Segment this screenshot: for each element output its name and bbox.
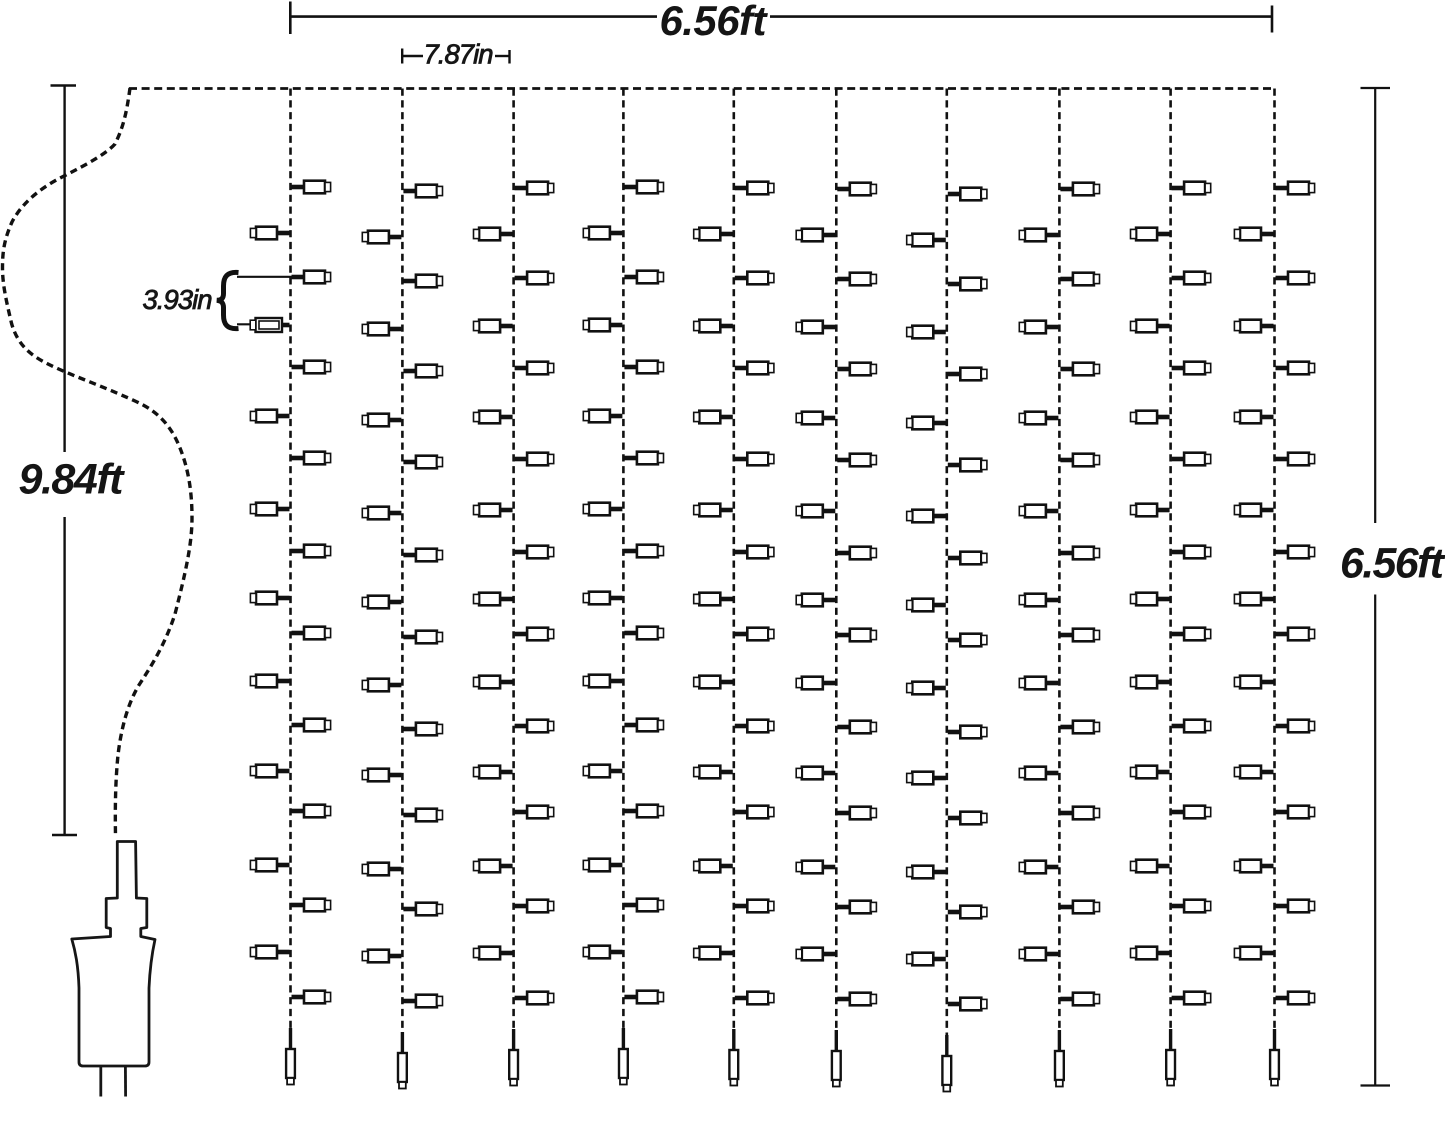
svg-text:9.84ft: 9.84ft <box>19 456 126 504</box>
svg-text:3.93in: 3.93in <box>143 284 213 315</box>
svg-text:6.56ft: 6.56ft <box>660 0 769 44</box>
svg-text:7.87in: 7.87in <box>424 39 494 70</box>
svg-text:6.56ft: 6.56ft <box>1340 540 1445 588</box>
